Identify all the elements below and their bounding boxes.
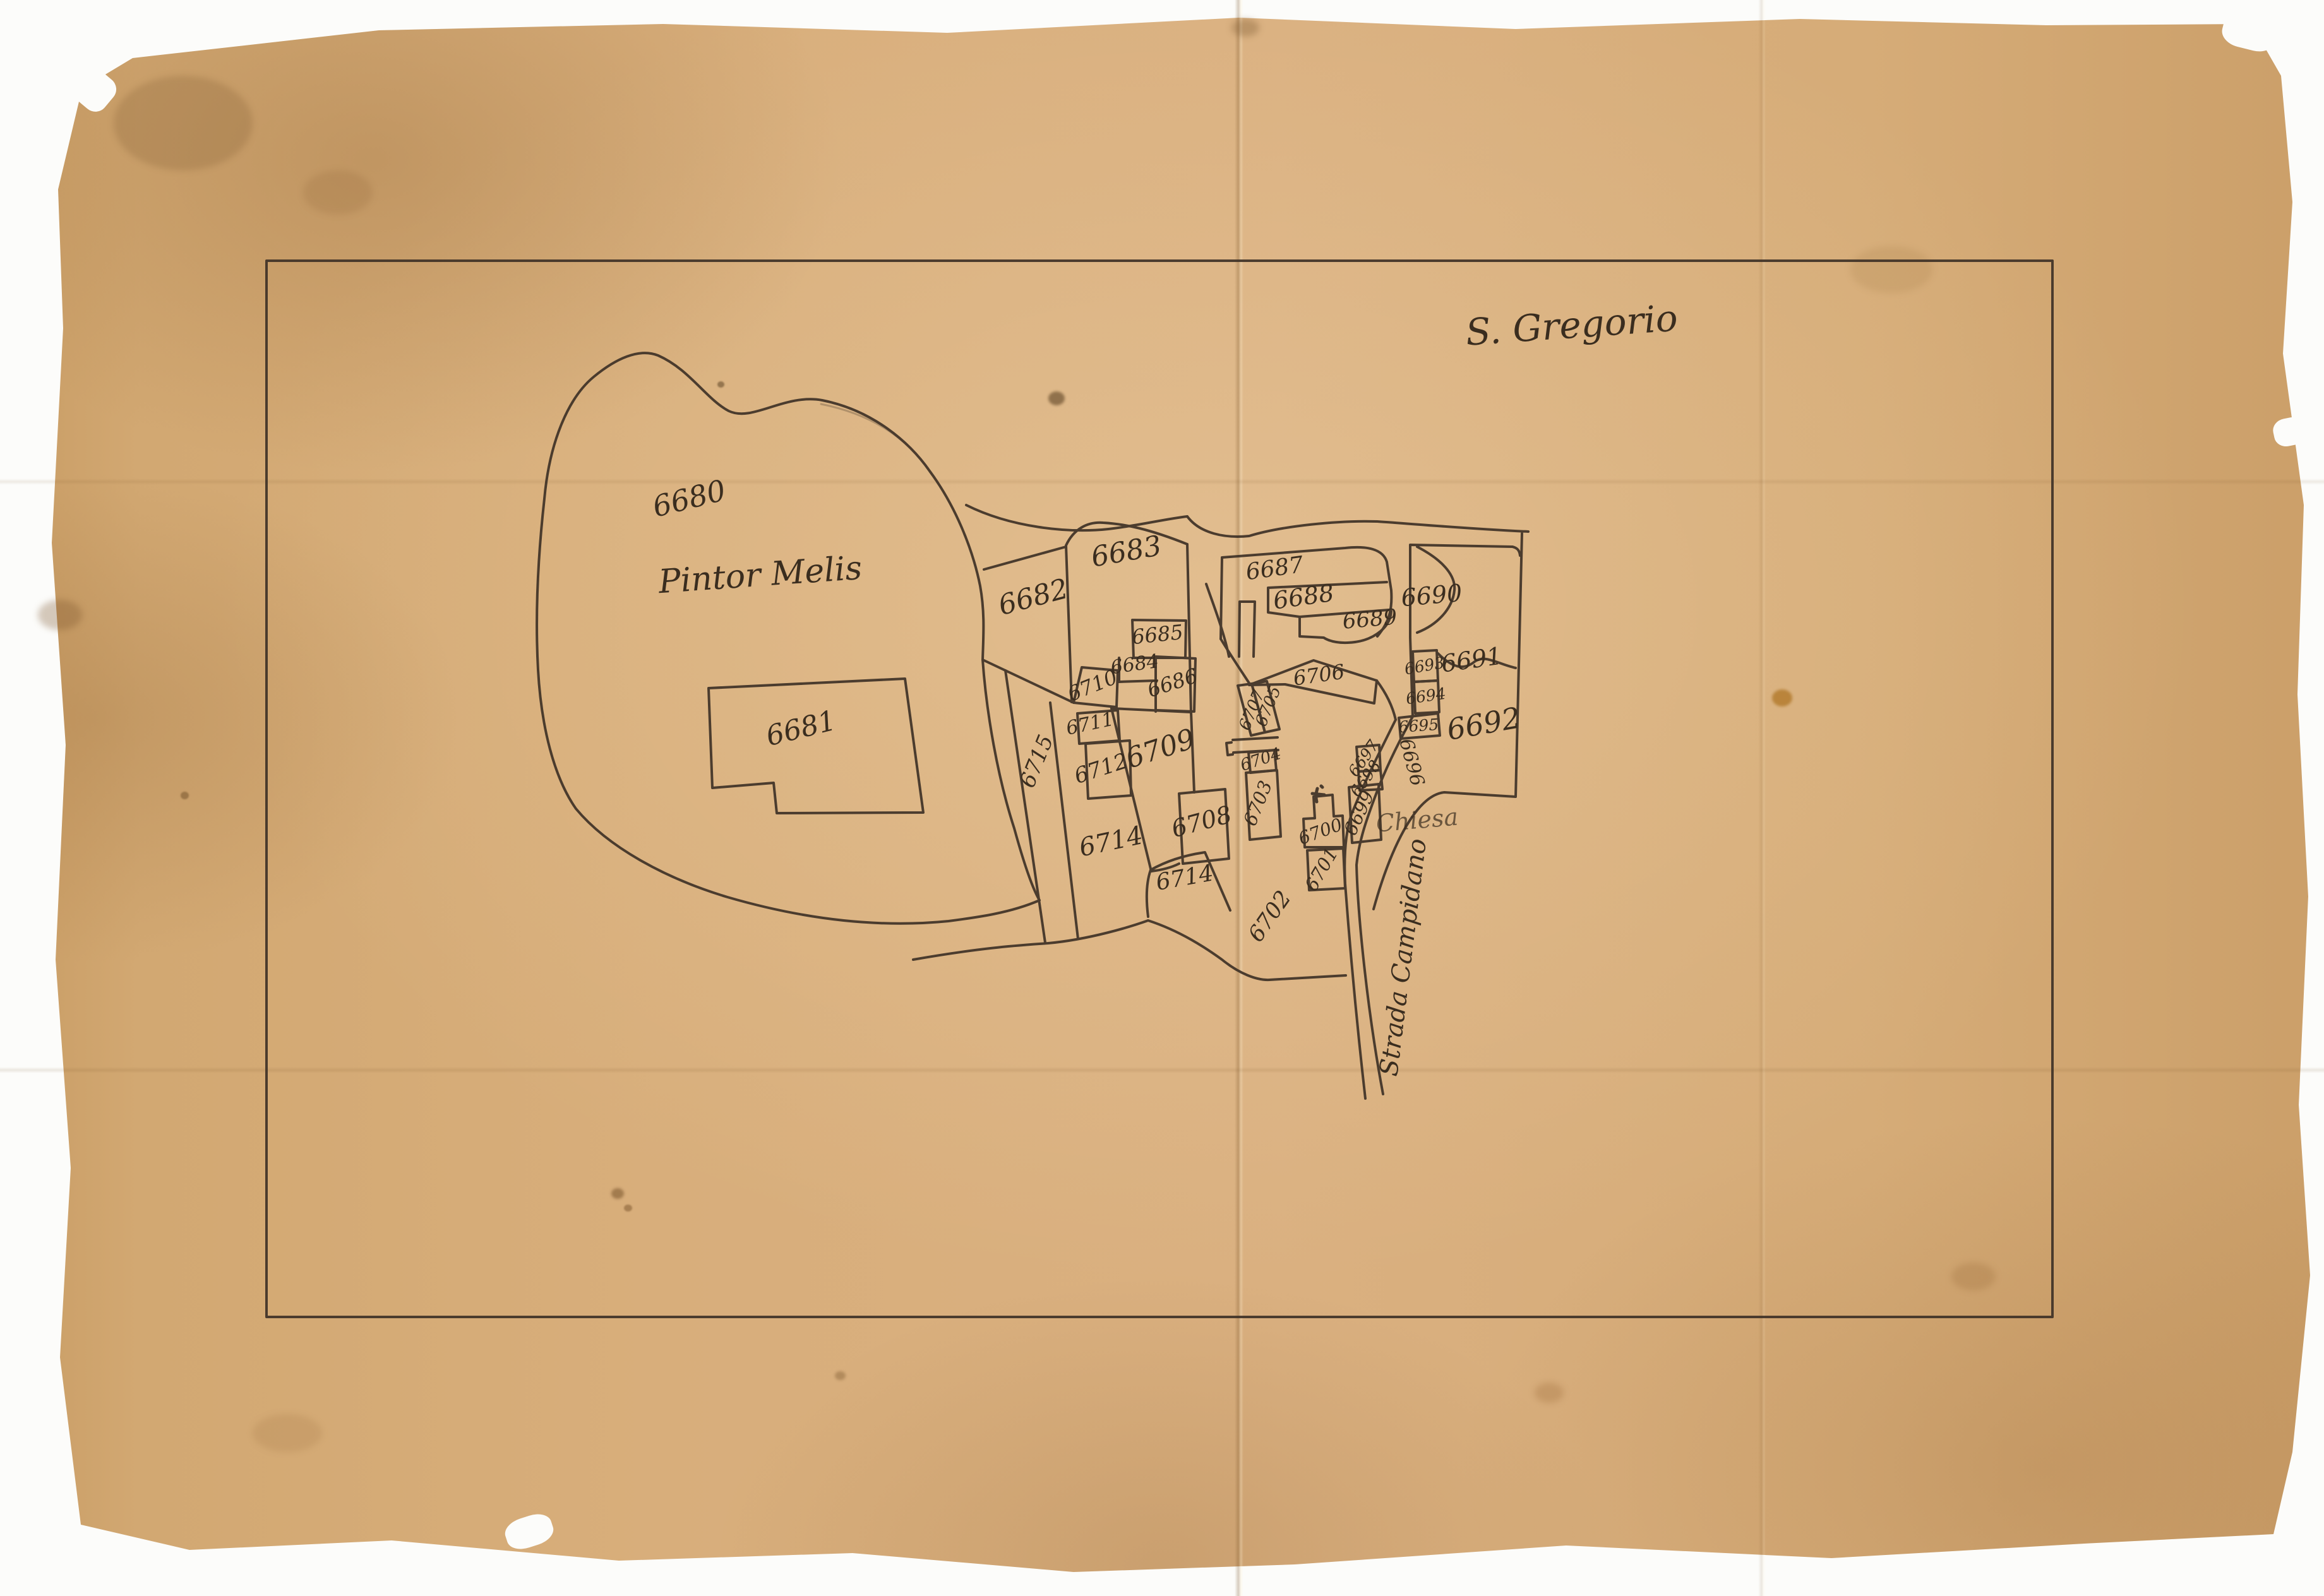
- south-boundary: [913, 920, 1346, 980]
- region-title: S. Gregorio: [1464, 296, 1679, 354]
- parcel-6681-outline: [709, 679, 923, 813]
- map-labels: S. Gregorio Pintor Melis Chiesa Strada C…: [649, 296, 1679, 1078]
- map-border-rectangle: [267, 261, 2052, 1317]
- parcel-label-6715: 6715: [1015, 731, 1059, 791]
- parcel-label-6683: 6683: [1089, 530, 1164, 574]
- parcel-label-6680: 6680: [649, 473, 729, 524]
- parcel-label-6696: 6696: [1394, 736, 1429, 789]
- parcel-label-6682: 6682: [995, 573, 1072, 622]
- parcel-label-6681: 6681: [763, 705, 839, 753]
- north-street-line: [966, 505, 1187, 530]
- bracket-mark: [1226, 742, 1233, 755]
- parcel-label-6692: 6692: [1444, 700, 1523, 747]
- parcel-label-6710: 6710: [1064, 665, 1121, 706]
- parcel-label-6714-a: 6714: [1077, 821, 1146, 862]
- outer-north-boundary: [1187, 516, 1528, 537]
- street-wedge-lines: [1206, 584, 1255, 657]
- parcel-label-6693: 6693: [1403, 653, 1446, 679]
- faint-pencil-arc: [821, 404, 928, 468]
- road-label: Strada Campidano: [1374, 837, 1432, 1078]
- parcel-label-6685: 6685: [1130, 620, 1184, 649]
- parcel-label-6689: 6689: [1341, 604, 1398, 634]
- scanned-cadastral-map: { "map": { "region_label": "S. Gregorio"…: [0, 0, 2324, 1596]
- parcel-6682-lines: [984, 547, 1066, 569]
- parcel-label-6684: 6684: [1109, 650, 1159, 679]
- hand-drawn-map-layer: S. Gregorio Pintor Melis Chiesa Strada C…: [0, 0, 2324, 1596]
- parcel-label-6699: 6699: [1339, 787, 1379, 838]
- parcel-label-6688: 6688: [1271, 579, 1336, 615]
- parcel-label-6711: 6711: [1064, 708, 1116, 740]
- connector-line: [1377, 681, 1396, 720]
- parcel-label-6690: 6690: [1400, 579, 1463, 612]
- parcel-6715-strip: [1005, 670, 1078, 943]
- parcel-label-6709: 6709: [1122, 723, 1199, 775]
- parcel-label-6687: 6687: [1244, 552, 1305, 585]
- connector-line: [1221, 639, 1249, 683]
- parcel-label-6691: 6691: [1439, 642, 1504, 678]
- parcel-label-6712: 6712: [1071, 748, 1131, 789]
- blob-outline-6680: [537, 353, 1039, 924]
- parcel-label-6695: 6695: [1398, 715, 1439, 736]
- parcel-label-6702: 6702: [1243, 886, 1297, 947]
- parcel-label-6706: 6706: [1292, 660, 1346, 691]
- parcel-label-6714-b: 6714: [1154, 861, 1215, 896]
- owner-name: Pintor Melis: [657, 549, 863, 601]
- church-label: Chiesa: [1375, 802, 1459, 837]
- boundary-line: [983, 660, 1074, 703]
- parcel-label-6708: 6708: [1168, 801, 1235, 843]
- parcel-label-6703: 6703: [1239, 778, 1276, 829]
